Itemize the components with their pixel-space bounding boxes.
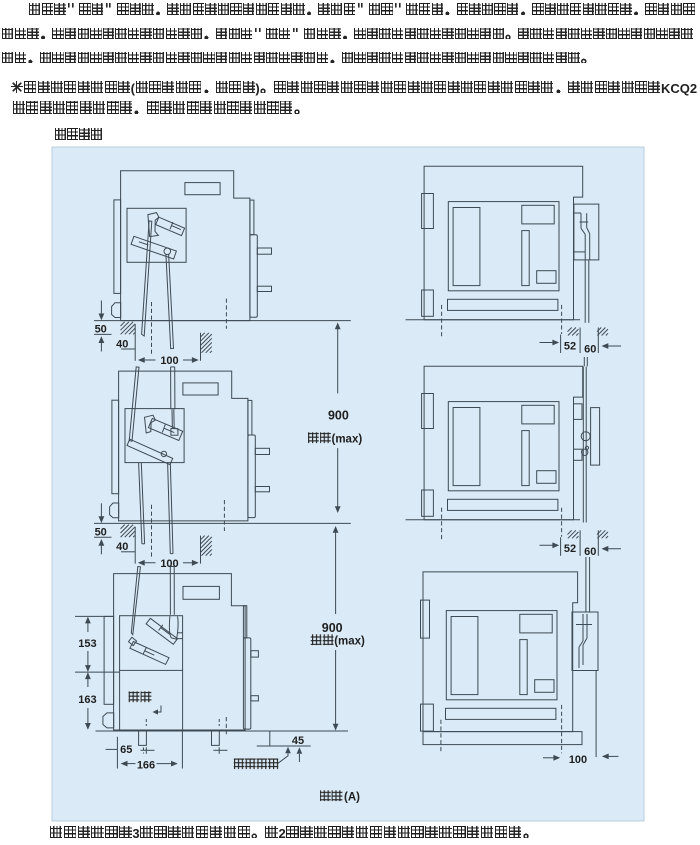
svg-text:900: 900 xyxy=(322,621,343,635)
svg-text:100: 100 xyxy=(569,754,587,766)
svg-text:100: 100 xyxy=(160,355,178,367)
svg-text:100: 100 xyxy=(160,558,178,570)
svg-text:50: 50 xyxy=(95,526,107,538)
svg-text:153: 153 xyxy=(78,638,96,650)
svg-text:65: 65 xyxy=(120,744,132,756)
svg-text:60: 60 xyxy=(584,546,596,558)
svg-text:(max): (max) xyxy=(334,635,365,647)
svg-text:52: 52 xyxy=(564,340,576,352)
svg-text:45: 45 xyxy=(292,735,304,747)
svg-text:(max): (max) xyxy=(332,433,363,445)
svg-text:52: 52 xyxy=(564,543,576,555)
svg-text:(A): (A) xyxy=(344,791,360,803)
svg-text:163: 163 xyxy=(78,694,96,706)
svg-text:166: 166 xyxy=(137,759,155,771)
svg-text:900: 900 xyxy=(328,408,349,422)
svg-text:60: 60 xyxy=(584,343,596,355)
svg-text:50: 50 xyxy=(95,324,107,336)
